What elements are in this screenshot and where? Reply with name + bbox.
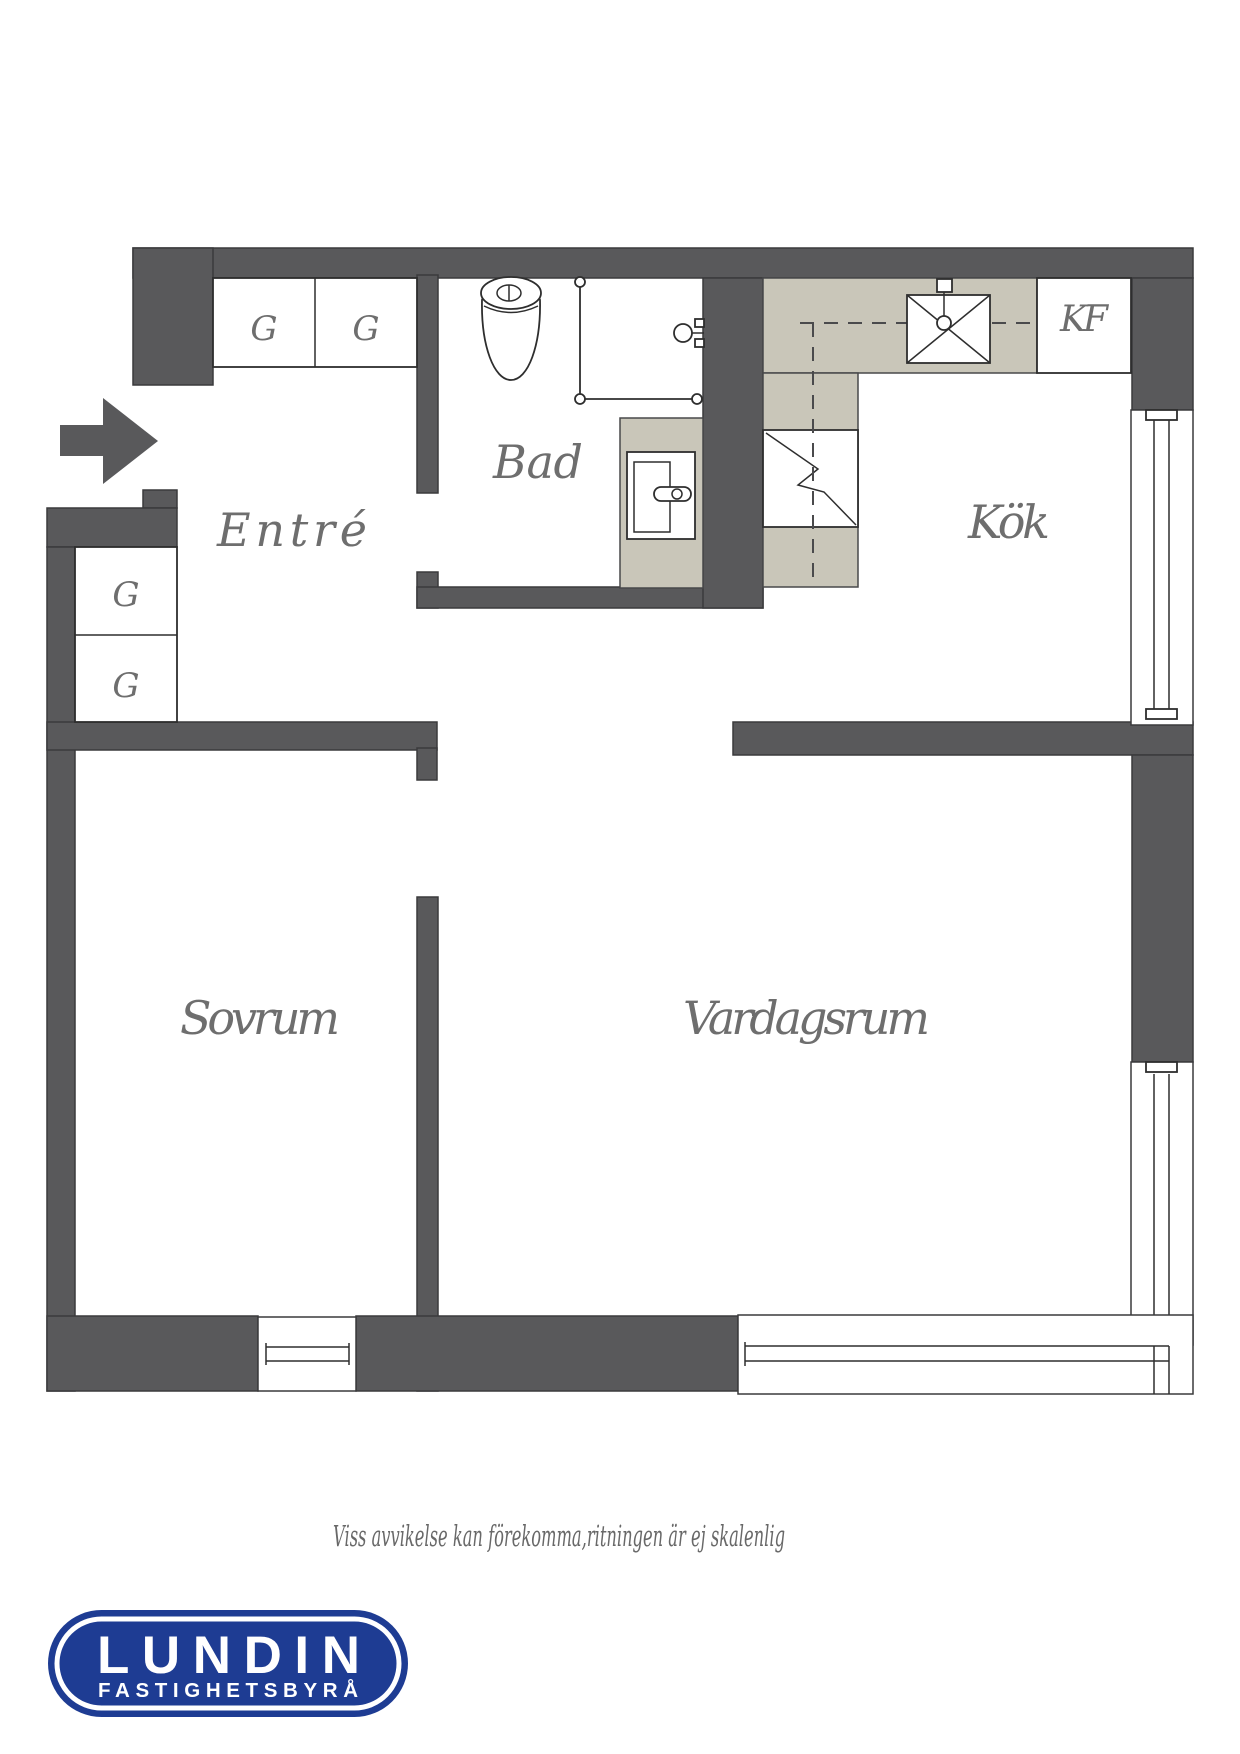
room-label-entre: Entré [216, 503, 367, 557]
floorplan-page: G G G G KF [0, 0, 1240, 1754]
wall-top-left-block [133, 248, 213, 385]
closets-left: G G [75, 547, 177, 722]
entrance-arrow-icon [60, 398, 158, 484]
lundin-logo: LUNDIN FASTIGHETSBYRÅ [48, 1610, 408, 1717]
toilet-icon [481, 277, 541, 380]
window-kitchen [1131, 410, 1193, 725]
closet-label: G [112, 666, 139, 706]
wall-bad-right [703, 278, 763, 608]
wall-left-outer [47, 547, 75, 1391]
closets-upper: G G [213, 278, 417, 367]
wall-bottom-left [47, 1316, 258, 1391]
fridge-freezer-label: KF [1059, 299, 1110, 340]
fridge-freezer: KF [1037, 278, 1131, 373]
wall-left-step [47, 508, 177, 547]
wall-right-mid [1132, 755, 1193, 1062]
bathroom-sink-icon [620, 418, 703, 588]
disclaimer-text: Viss avvikelse kan förekomma,ritningen ä… [333, 1519, 785, 1553]
closet-label: G [112, 575, 139, 615]
room-label-vardagsrum: Vardagsrum [683, 991, 930, 1045]
wall-entre-bottom [47, 722, 437, 750]
room-label-kok: Kök [967, 495, 1050, 549]
room-label-bad: Bad [492, 435, 583, 489]
dishwasher-icon [763, 430, 858, 527]
shower-icon [575, 277, 704, 404]
wall-bottom-mid [356, 1316, 738, 1391]
wall-entre-bottom-stub [417, 748, 437, 780]
wall-bad-entre [417, 275, 438, 493]
wall-kok-lower [733, 722, 1193, 755]
wall-top [133, 248, 1193, 278]
room-label-sovrum: Sovrum [180, 991, 340, 1045]
closet-label: G [250, 309, 277, 349]
closet-label: G [352, 309, 379, 349]
floorplan-drawing: G G G G KF [0, 0, 1240, 1754]
window-bedroom [258, 1317, 356, 1391]
wall-top-right-block [1132, 278, 1193, 410]
window-livingroom-bottom [738, 1315, 1193, 1394]
wall-entry-stub [143, 490, 177, 508]
